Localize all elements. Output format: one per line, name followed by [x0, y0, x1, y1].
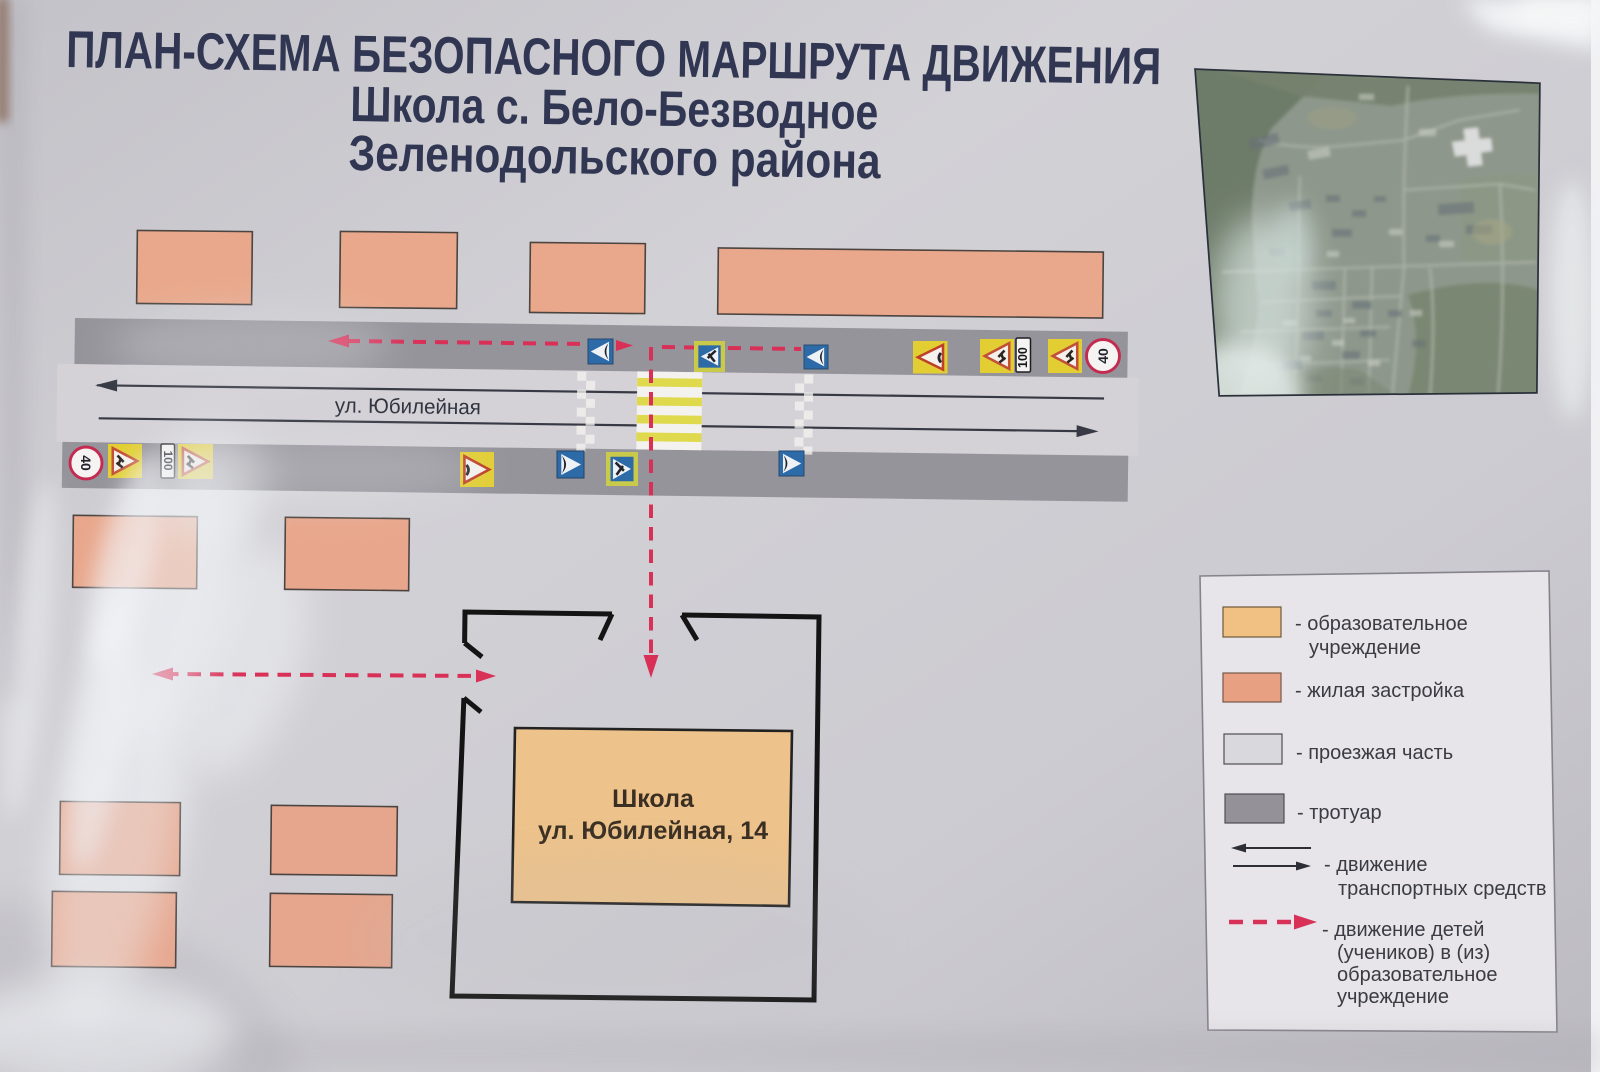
svg-text:- движение детей: - движение детей: [1322, 919, 1484, 941]
svg-text:транспортных средств: транспортных средств: [1338, 878, 1547, 900]
svg-text:- движение: - движение: [1324, 854, 1428, 876]
svg-text:учреждение: учреждение: [1309, 637, 1421, 659]
svg-text:образовательное: образовательное: [1337, 964, 1498, 986]
svg-text:- тротуар: - тротуар: [1297, 802, 1382, 824]
svg-text:- проезжая часть: - проезжая часть: [1296, 742, 1453, 764]
svg-text:- образовательное: - образовательное: [1295, 613, 1468, 635]
svg-text:Зеленодольского района: Зеленодольского района: [348, 125, 882, 189]
svg-text:40: 40: [1095, 348, 1111, 364]
svg-text:Школа: Школа: [612, 785, 695, 813]
svg-text:- жилая застройка: - жилая застройка: [1295, 680, 1465, 702]
svg-text:100: 100: [1016, 347, 1030, 368]
svg-text:40: 40: [78, 455, 94, 471]
svg-text:ул. Юбилейная, 14: ул. Юбилейная, 14: [538, 817, 768, 845]
svg-text:учреждение: учреждение: [1337, 986, 1449, 1008]
svg-text:(учеников) в (из): (учеников) в (из): [1337, 942, 1490, 964]
svg-text:ул. Юбилейная: ул. Юбилейная: [335, 394, 481, 419]
svg-text:100: 100: [161, 451, 175, 471]
